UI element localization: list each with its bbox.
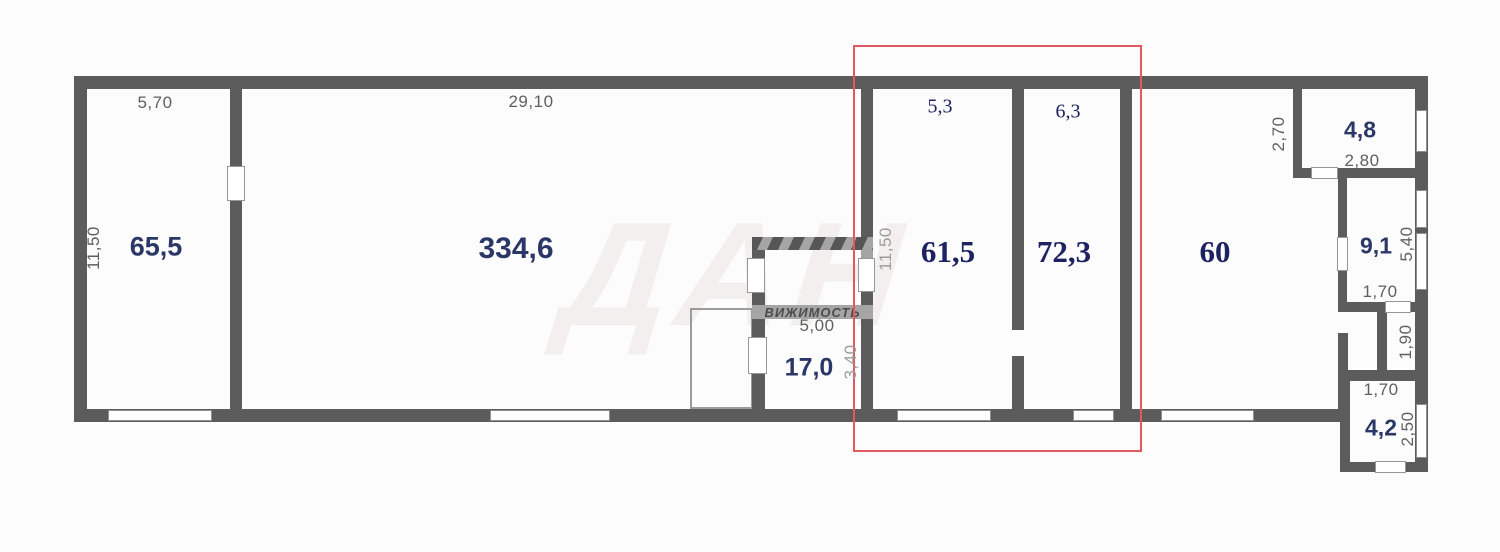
door [748,337,767,374]
door [747,258,765,293]
room-area-60: 60 [1200,234,1231,270]
window [1416,110,1427,152]
dim-29-10: 29,10 [508,92,553,112]
wall-19-left [1377,307,1387,376]
dim-6-3: 6,3 [1056,101,1081,124]
window [1161,410,1254,421]
window [1416,190,1427,228]
door [1311,167,1338,179]
dim-2-70: 2,70 [1269,116,1289,151]
dim-5-70: 5,70 [137,93,172,113]
porch-outline [690,308,753,409]
door [1385,301,1411,313]
wall-bottom [74,409,1340,422]
dim-11-50-left: 11,50 [84,226,104,270]
room-area-334-6: 334,6 [478,232,553,266]
wall-91-bottom [1338,302,1428,312]
wall-42-left [1340,372,1350,472]
wall-65-334 [230,89,242,409]
room-area-4-2: 4,2 [1365,415,1397,442]
dim-2-80: 2,80 [1344,151,1379,171]
selection-highlight [853,45,1142,452]
room-area-9-1: 9,1 [1360,233,1392,260]
wall-top [74,76,1428,89]
dim-2-50: 2,50 [1398,411,1418,446]
dim-11-50-mid: 11,50 [876,227,896,271]
door [227,166,245,201]
floor-plan: ДАН ВИЖИМОСТЬ 65,5 334,6 1 [0,0,1500,552]
room-area-72-3: 72,3 [1037,234,1091,270]
door [1337,237,1348,271]
room-area-4-8: 4,8 [1344,117,1376,144]
room-area-65-5: 65,5 [130,232,183,263]
dim-3-40: 3,40 [841,344,861,379]
dim-5-40: 5,40 [1397,226,1417,261]
wall-48-left [1293,89,1302,177]
room-area-61-5: 61,5 [921,234,975,270]
door [1375,461,1406,473]
window [490,410,610,421]
room-area-17-0: 17,0 [785,354,834,383]
dim-1-90: 1,90 [1396,324,1416,359]
window [1416,233,1427,290]
dim-1-70-b: 1,70 [1363,380,1398,400]
dim-1-70-a: 1,70 [1362,282,1397,302]
dim-5-3: 5,3 [928,96,953,119]
dim-5-00: 5,00 [799,316,834,336]
window [108,410,212,421]
